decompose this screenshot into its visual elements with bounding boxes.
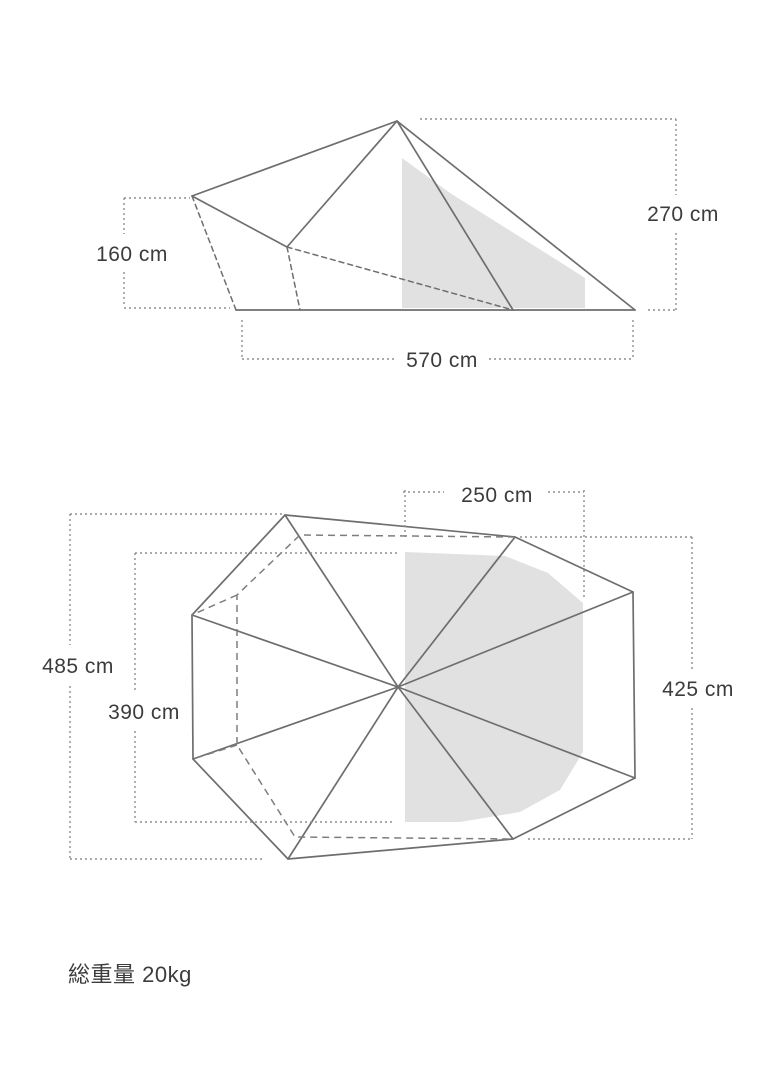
dimension-inner-length: 390 cm	[108, 553, 397, 822]
dimension-label-base-width: 570 cm	[406, 349, 478, 372]
dimension-label-inner-length: 390 cm	[108, 701, 180, 724]
dimension-label-overall-length: 485 cm	[42, 655, 114, 678]
top-view-shaded-floor	[405, 552, 583, 822]
dimension-label-side-width: 425 cm	[662, 678, 734, 701]
dimension-overall-length: 485 cm	[42, 514, 283, 859]
dimension-label-side-height: 160 cm	[96, 243, 168, 266]
side-view-shaded-cross-section	[402, 158, 585, 308]
total-weight-label: 総重量 20kg	[68, 962, 192, 987]
dimension-label-front-width: 250 cm	[461, 484, 533, 507]
diagram-canvas: 270 cm 160 cm 570 cm	[0, 0, 771, 1080]
tent-spec-diagram-page: 270 cm 160 cm 570 cm	[0, 0, 771, 1080]
side-view-diagram: 270 cm 160 cm 570 cm	[96, 119, 719, 372]
top-view-diagram: 250 cm 485 cm 390 cm	[42, 484, 734, 859]
dimension-label-peak-height: 270 cm	[647, 203, 719, 226]
dimension-base-width: 570 cm	[242, 320, 633, 372]
dimension-side-height: 160 cm	[96, 198, 230, 308]
